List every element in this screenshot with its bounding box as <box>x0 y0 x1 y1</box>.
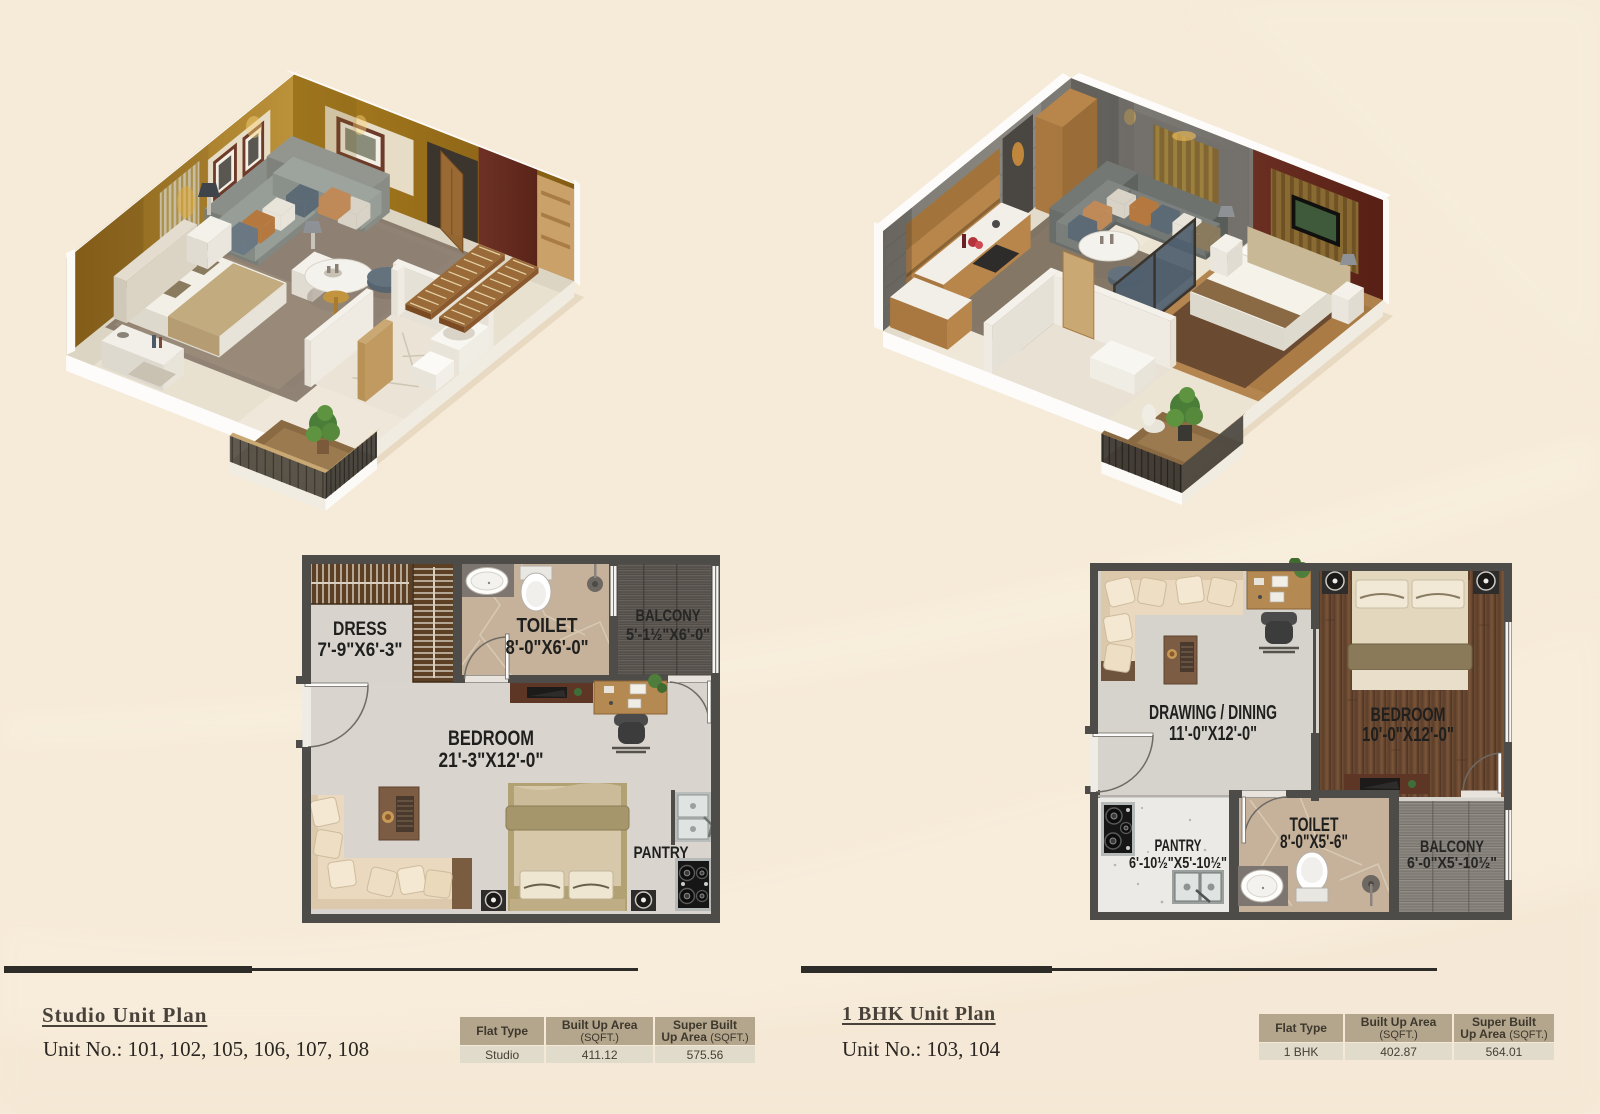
svg-text:BALCONY: BALCONY <box>1420 837 1484 856</box>
svg-text:7'-9"X6'-3": 7'-9"X6'-3" <box>318 639 403 661</box>
svg-text:DRESS: DRESS <box>333 618 387 640</box>
svg-text:PANTRY: PANTRY <box>1155 837 1202 855</box>
svg-text:DRAWING / DINING: DRAWING / DINING <box>1149 701 1277 724</box>
svg-text:5'-1½"X6'-0": 5'-1½"X6'-0" <box>626 625 710 644</box>
svg-text:10'-0"X12'-0": 10'-0"X12'-0" <box>1362 724 1454 746</box>
svg-text:6'-10½"X5'-10½": 6'-10½"X5'-10½" <box>1129 855 1227 872</box>
svg-text:8'-0"X6'-0": 8'-0"X6'-0" <box>506 637 589 659</box>
svg-text:6'-0"X5'-10½": 6'-0"X5'-10½" <box>1407 855 1497 872</box>
svg-text:21'-3"X12'-0": 21'-3"X12'-0" <box>439 749 544 772</box>
svg-text:8'-0"X5'-6": 8'-0"X5'-6" <box>1280 832 1348 853</box>
svg-text:BEDROOM: BEDROOM <box>1371 705 1446 726</box>
svg-text:TOILET: TOILET <box>517 615 578 637</box>
svg-text:BALCONY: BALCONY <box>636 606 702 625</box>
svg-text:PANTRY: PANTRY <box>634 843 690 862</box>
svg-text:BEDROOM: BEDROOM <box>448 727 534 750</box>
svg-text:11'-0"X12'-0": 11'-0"X12'-0" <box>1169 723 1257 745</box>
